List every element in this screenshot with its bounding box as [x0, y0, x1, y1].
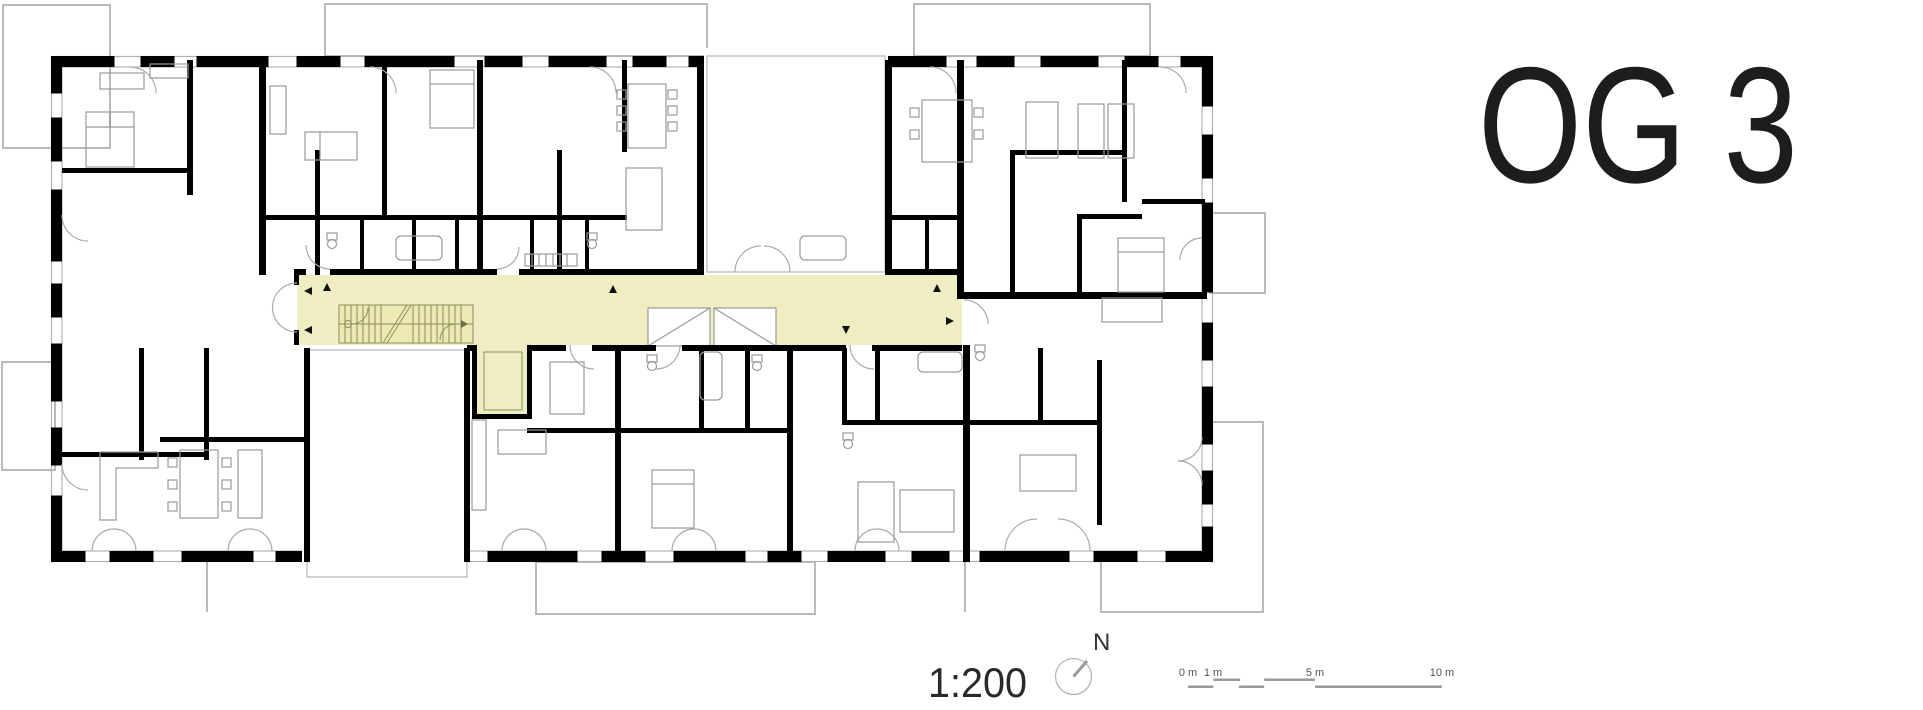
scale-bar-label-1m: 1 m [1204, 667, 1222, 679]
floor-title: OG 3 [1478, 33, 1798, 217]
floor-plan-page: OG 3 1:200 N 0 m 1 m 5 m 10 m [0, 0, 1923, 710]
atrium-void [704, 48, 888, 272]
staircase [339, 305, 473, 343]
north-indicator: N [1056, 629, 1111, 695]
corridor-stub-area [477, 345, 528, 417]
scale-bar-label-5m: 5 m [1306, 667, 1324, 679]
north-label: N [1093, 629, 1110, 656]
lightwell-void [302, 348, 470, 577]
north-needle [1074, 661, 1088, 677]
floor-plan-image: OG 3 1:200 N 0 m 1 m 5 m 10 m [0, 0, 1923, 710]
scale-text: 1:200 [928, 659, 1027, 706]
scale-bar-label-0m: 0 m [1179, 667, 1197, 679]
scale-bar-label-10m: 10 m [1430, 667, 1454, 679]
scale-bar: 0 m 1 m 5 m 10 m [1179, 667, 1454, 688]
